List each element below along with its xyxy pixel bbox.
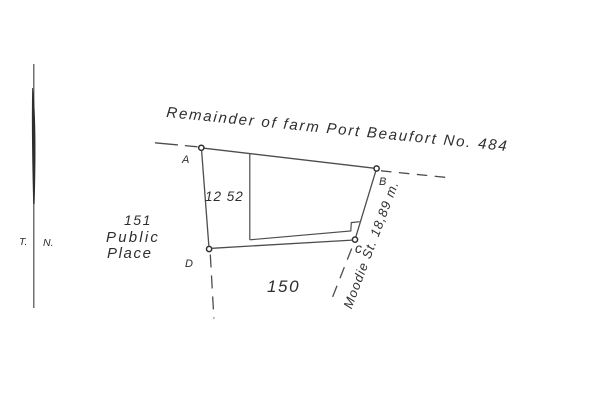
svg-text:150: 150 — [267, 277, 300, 296]
svg-text:N.: N. — [43, 237, 54, 249]
svg-text:Remainder of farm Port Beaufor: Remainder of farm Port Beaufort No. 484 — [166, 104, 510, 155]
svg-text:Public: Public — [106, 229, 160, 246]
svg-text:D: D — [185, 258, 193, 270]
svg-text:T.: T. — [19, 236, 27, 248]
svg-text:151: 151 — [124, 212, 152, 228]
svg-text:Moodie St. 18,89 m.: Moodie St. 18,89 m. — [340, 179, 401, 311]
svg-text:A: A — [181, 154, 189, 166]
svg-text:Place: Place — [107, 245, 153, 262]
svg-text:12 52: 12 52 — [205, 189, 244, 204]
